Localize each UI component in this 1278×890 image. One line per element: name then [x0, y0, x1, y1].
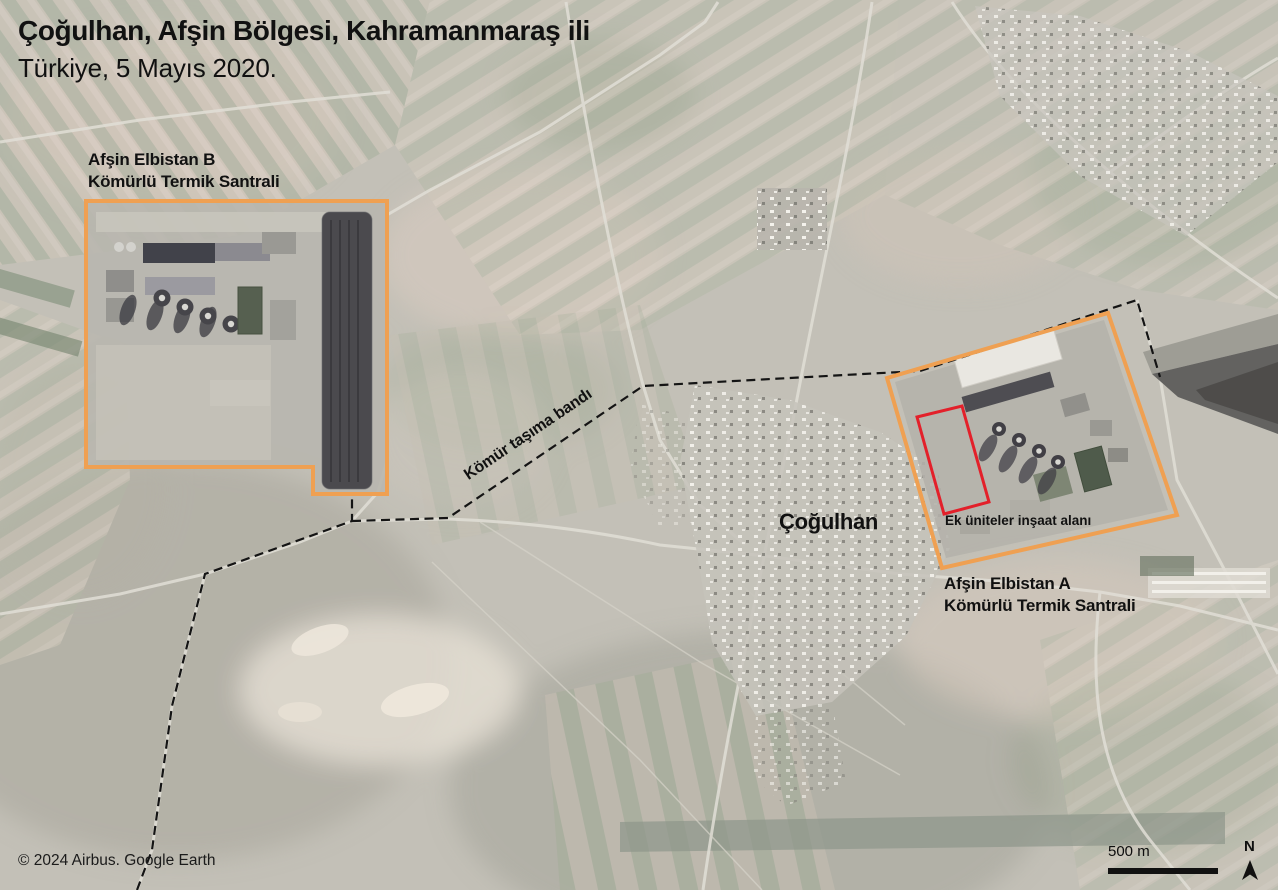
construction-area-outline [917, 406, 989, 514]
plant-a-outline [887, 313, 1177, 568]
plant-a-label: Afşin Elbistan A Kömürlü Termik Santrali [944, 573, 1136, 617]
annotation-overlay [0, 0, 1278, 890]
plant-a-label-line1: Afşin Elbistan A [944, 573, 1136, 595]
map-subtitle: Türkiye, 5 Mayıs 2020. [18, 54, 277, 83]
town-label: Çoğulhan [779, 510, 878, 534]
plant-b-label: Afşin Elbistan B Kömürlü Termik Santrali [88, 149, 280, 193]
plant-b-outline [86, 201, 387, 494]
plant-a-label-line2: Kömürlü Termik Santrali [944, 595, 1136, 617]
plant-b-label-line1: Afşin Elbistan B [88, 149, 280, 171]
scale-bar [1108, 868, 1218, 874]
north-arrow-icon [1240, 858, 1260, 882]
satellite-map-figure: Çoğulhan, Afşin Bölgesi, Kahramanmaraş i… [0, 0, 1278, 890]
imagery-attribution: © 2024 Airbus. Google Earth [18, 852, 216, 869]
construction-area-label: Ek üniteler inşaat alanı [945, 514, 1091, 529]
plant-b-label-line2: Kömürlü Termik Santrali [88, 171, 280, 193]
conveyor-route-dashed-west [137, 494, 352, 890]
scale-label: 500 m [1108, 844, 1150, 861]
north-label: N [1244, 839, 1255, 856]
map-title: Çoğulhan, Afşin Bölgesi, Kahramanmaraş i… [18, 16, 590, 47]
